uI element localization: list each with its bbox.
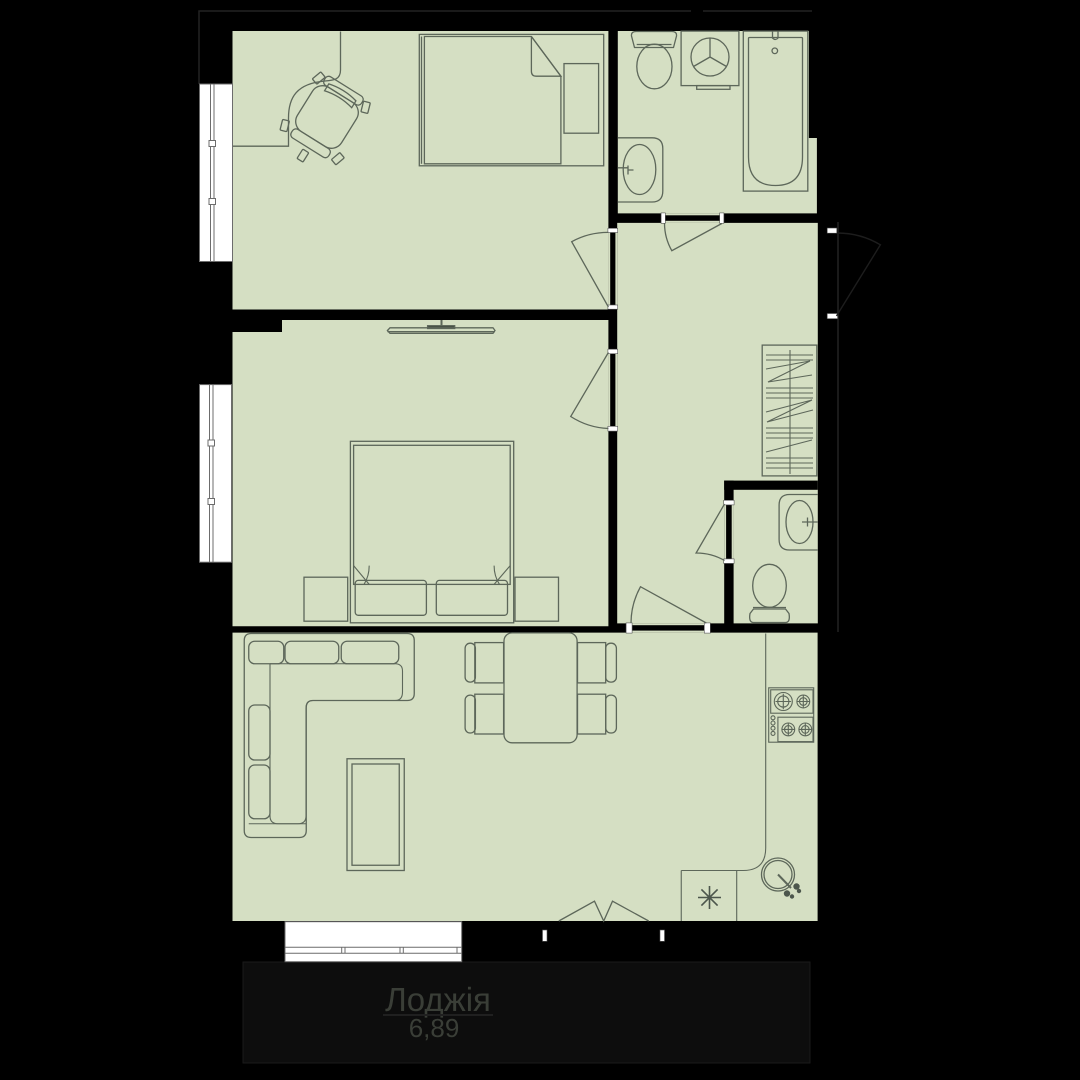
svg-text:6,89: 6,89 [409,1013,460,1043]
